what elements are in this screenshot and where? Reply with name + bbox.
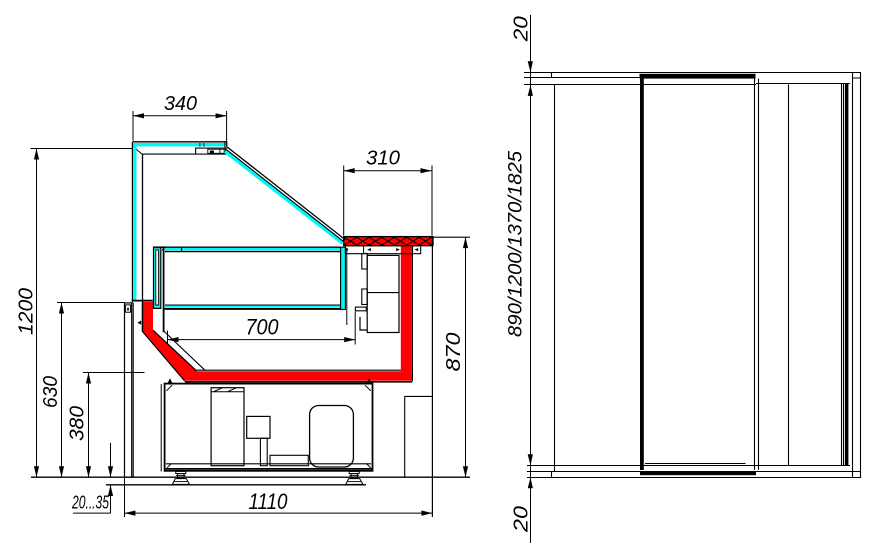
svg-text:1200: 1200 <box>16 288 38 335</box>
svg-text:20...35: 20...35 <box>71 493 109 513</box>
svg-text:380: 380 <box>67 406 89 441</box>
svg-text:1110: 1110 <box>249 489 289 514</box>
svg-text:20: 20 <box>511 506 533 533</box>
svg-text:340: 340 <box>164 93 197 115</box>
svg-text:310: 310 <box>366 148 400 170</box>
svg-text:20: 20 <box>511 16 533 42</box>
svg-text:630: 630 <box>40 376 62 408</box>
svg-text:870: 870 <box>443 333 465 372</box>
svg-text:890/1200/1370/1825: 890/1200/1370/1825 <box>506 151 527 337</box>
svg-text:700: 700 <box>246 315 280 340</box>
